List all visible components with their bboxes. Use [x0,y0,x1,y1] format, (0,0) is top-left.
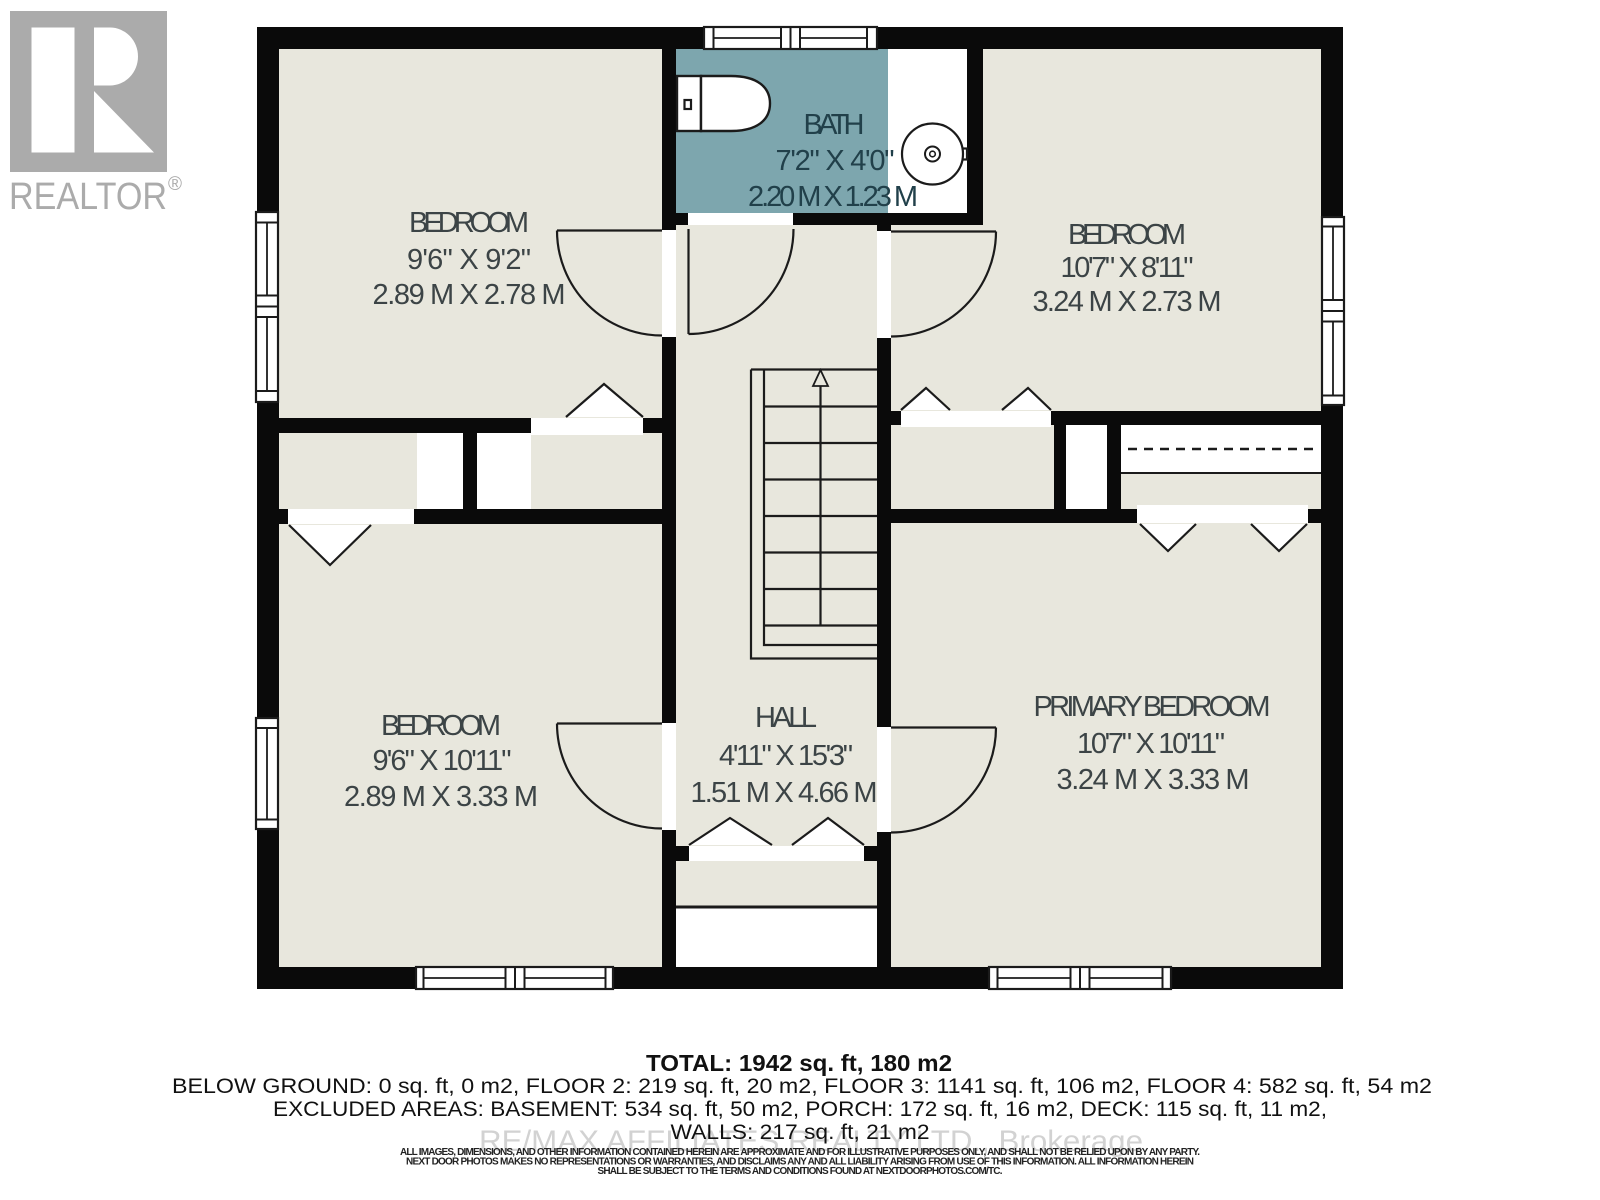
svg-text:10'7" X 10'11": 10'7" X 10'11" [1077,728,1225,760]
svg-text:4'11" X 15'3": 4'11" X 15'3" [719,740,853,772]
svg-text:BEDROOM: BEDROOM [381,710,501,742]
svg-text:BEDROOM: BEDROOM [1068,219,1186,251]
svg-text:EXCLUDED AREAS: BASEMENT: 534: EXCLUDED AREAS: BASEMENT: 534 sq. ft, 50… [273,1097,1327,1121]
svg-text:TOTAL: 1942 sq. ft, 180 m2: TOTAL: 1942 sq. ft, 180 m2 [646,1050,952,1076]
svg-text:®: ® [168,174,182,195]
svg-text:9'6" X 9'2": 9'6" X 9'2" [407,244,531,276]
svg-text:PRIMARY BEDROOM: PRIMARY BEDROOM [1034,691,1271,723]
svg-text:WALLS: 217 sq. ft, 21 m2: WALLS: 217 sq. ft, 21 m2 [671,1120,930,1144]
svg-text:SHALL BE SUBJECT TO THE TERMS: SHALL BE SUBJECT TO THE TERMS AND CONDIT… [598,1166,1003,1177]
svg-text:HALL: HALL [755,702,817,734]
svg-text:9'6" X 10'11": 9'6" X 10'11" [373,745,512,777]
svg-text:BEDROOM: BEDROOM [409,207,529,239]
svg-text:3.24 M X 2.73 M: 3.24 M X 2.73 M [1033,286,1222,318]
svg-text:2.89 M X 3.33 M: 2.89 M X 3.33 M [344,781,538,813]
svg-text:3.24 M X 3.33 M: 3.24 M X 3.33 M [1057,764,1250,796]
svg-text:7'2" X 4'0": 7'2" X 4'0" [776,145,895,177]
svg-text:BATH: BATH [804,109,865,141]
svg-text:2.20 M X 1.23 M: 2.20 M X 1.23 M [748,181,918,213]
svg-text:BELOW GROUND: 0 sq. ft, 0 m2,: BELOW GROUND: 0 sq. ft, 0 m2, FLOOR 2: 2… [172,1074,1432,1098]
svg-text:10'7" X 8'11": 10'7" X 8'11" [1061,252,1194,284]
svg-text:1.51 M X 4.66 M: 1.51 M X 4.66 M [691,777,878,809]
svg-text:2.89 M X 2.78 M: 2.89 M X 2.78 M [373,279,566,311]
svg-text:REALTOR: REALTOR [9,176,167,218]
